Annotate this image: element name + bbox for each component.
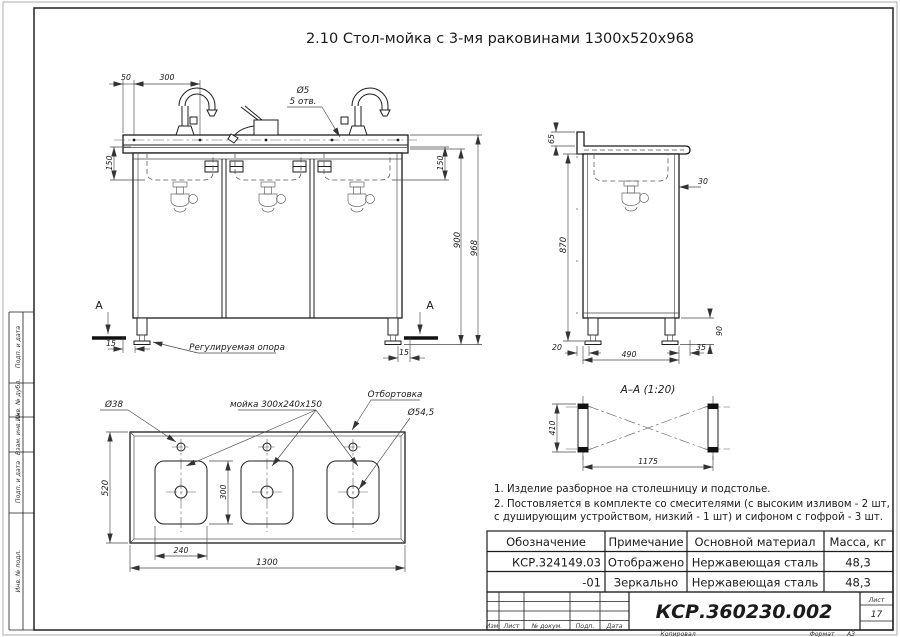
- faucet-left: [176, 88, 217, 135]
- spec-header-designation: Обозначение: [506, 535, 586, 549]
- dim-150-right: 150: [436, 156, 445, 171]
- dim-90: 90: [715, 326, 724, 336]
- channel-left: [578, 404, 588, 452]
- stamp-vzam-inv: Взам. инв. №: [15, 413, 22, 455]
- side-dim-30: 30: [679, 177, 708, 187]
- rev-col-docnum: № докум.: [531, 623, 563, 630]
- sheet-number: 17: [871, 610, 883, 620]
- title-block: Изм. Лист № докум. Подп. Дата КСР.360230…: [486, 592, 893, 630]
- dim-20: 20: [552, 343, 562, 352]
- callout-sink: мойка 300х240х150: [230, 400, 322, 410]
- section-aa-view: А–А (1:20) 410 1175: [548, 384, 730, 471]
- spec-r2-material: Нержавеющая сталь: [692, 576, 819, 590]
- spec-r1-remark: Отображено: [608, 556, 684, 570]
- channel-right: [708, 404, 718, 452]
- side-dim-65: 65: [547, 122, 575, 156]
- dim-870: 870: [559, 237, 569, 253]
- section-letter-left: А: [95, 299, 103, 312]
- rev-col-podp: Подп.: [576, 623, 595, 630]
- spec-r1-designation: КСР.324149.03: [512, 556, 601, 570]
- note-line-1: 1. Изделие разборное на столешницу и под…: [494, 484, 771, 495]
- spec-row-2: -01 Зеркально Нержавеющая сталь 48,3: [582, 576, 871, 590]
- dim-490: 490: [622, 350, 637, 359]
- spec-r2-designation: -01: [582, 576, 601, 590]
- dim-1300: 1300: [256, 558, 278, 568]
- hole-callout: Ø5 5 отв.: [287, 85, 340, 137]
- footer-format-label: Формат: [809, 631, 834, 637]
- callout-flange: Отбортовка: [368, 390, 423, 400]
- stamp-podp-data-1: Подп. и дата: [15, 326, 22, 368]
- faucet-right: [341, 88, 390, 135]
- sheet-label: Лист: [868, 597, 885, 604]
- spec-table: Обозначение Примечание Основной материал…: [487, 531, 893, 592]
- doc-number: КСР.360230.002: [656, 601, 833, 623]
- footer-format-value: А3: [846, 631, 855, 637]
- dim-30: 30: [698, 177, 708, 186]
- footer-kopiroval: Копировал: [660, 631, 695, 637]
- spec-header-mass: Масса, кг: [830, 535, 887, 549]
- dim-968: 968: [470, 239, 480, 256]
- dim-300-plan: 300: [219, 485, 228, 500]
- stamp-podp-data-2: Подп. и дата: [15, 461, 22, 503]
- border-stamp-column: Подп. и дата Инв. № дубл. Взам. инв. № П…: [9, 312, 34, 630]
- spec-r1-material: Нержавеющая сталь: [692, 556, 819, 570]
- side-dim-870: 870: [559, 154, 584, 341]
- dim-300-top: 300: [160, 73, 175, 82]
- hole-callout-qty: 5 отв.: [290, 97, 317, 107]
- spec-r2-remark: Зеркально: [614, 576, 678, 590]
- dim-150-left: 150: [105, 156, 114, 171]
- dim-520: 520: [101, 480, 111, 496]
- dim-15-right: 15: [399, 348, 409, 357]
- section-aa-title: А–А (1:20): [620, 384, 676, 396]
- spec-header-material: Основной материал: [694, 535, 815, 549]
- support-callout: Регулируемая опора: [153, 342, 285, 353]
- spec-r2-mass: 48,3: [845, 576, 871, 590]
- dim-35: 35: [696, 343, 706, 352]
- legs-front: [134, 318, 401, 345]
- side-view: 65 870 30 90 20 490 35: [547, 122, 724, 364]
- support-label: Регулируемая опора: [189, 343, 285, 353]
- stamp-inv-podl: Инв. № подл.: [15, 550, 22, 593]
- callout-faucet-hole: Ø38: [104, 399, 124, 410]
- legs-side: [585, 318, 678, 345]
- dim-65: 65: [547, 134, 556, 144]
- drawing-title: 2.10 Стол-мойка с 3-мя раковинами 1300х5…: [306, 31, 694, 47]
- note-line-2: 2. Постовляется в комплекте со смесителя…: [494, 499, 890, 510]
- section-aa-dims: 410 1175: [548, 404, 713, 471]
- drawing-sheet: Подп. и дата Инв. № дубл. Взам. инв. № П…: [0, 0, 900, 637]
- note-line-3: с душирующим устройством, низкий - 1 шт)…: [494, 512, 883, 523]
- plan-view: 520 300 240 1300 Ø38 мойка 300х240х150 О…: [100, 390, 435, 572]
- rev-col-list: Лист: [503, 623, 520, 630]
- spec-row-1: КСР.324149.03 Отображено Нержавеющая ста…: [512, 556, 871, 570]
- rev-col-data: Дата: [605, 623, 622, 630]
- dim-50: 50: [121, 73, 131, 82]
- dim-15-left: 15: [106, 339, 116, 348]
- notes: 1. Изделие разборное на столешницу и под…: [494, 484, 890, 523]
- section-letter-right: А: [426, 299, 434, 312]
- dim-240: 240: [174, 546, 189, 555]
- sheet-footer: Копировал Формат А3: [660, 631, 855, 637]
- front-view: А А 50 300 Ø5 5 отв. 150 150: [92, 73, 482, 362]
- callout-drain: Ø54,5: [407, 407, 435, 418]
- spec-r1-mass: 48,3: [845, 556, 871, 570]
- spec-header-remark: Примечание: [608, 535, 683, 549]
- dim-1175: 1175: [638, 457, 658, 466]
- hole-callout-dia: Ø5: [296, 85, 310, 96]
- dim-410: 410: [548, 421, 557, 436]
- rev-col-izm: Изм.: [486, 623, 501, 630]
- dim-900: 900: [453, 232, 463, 248]
